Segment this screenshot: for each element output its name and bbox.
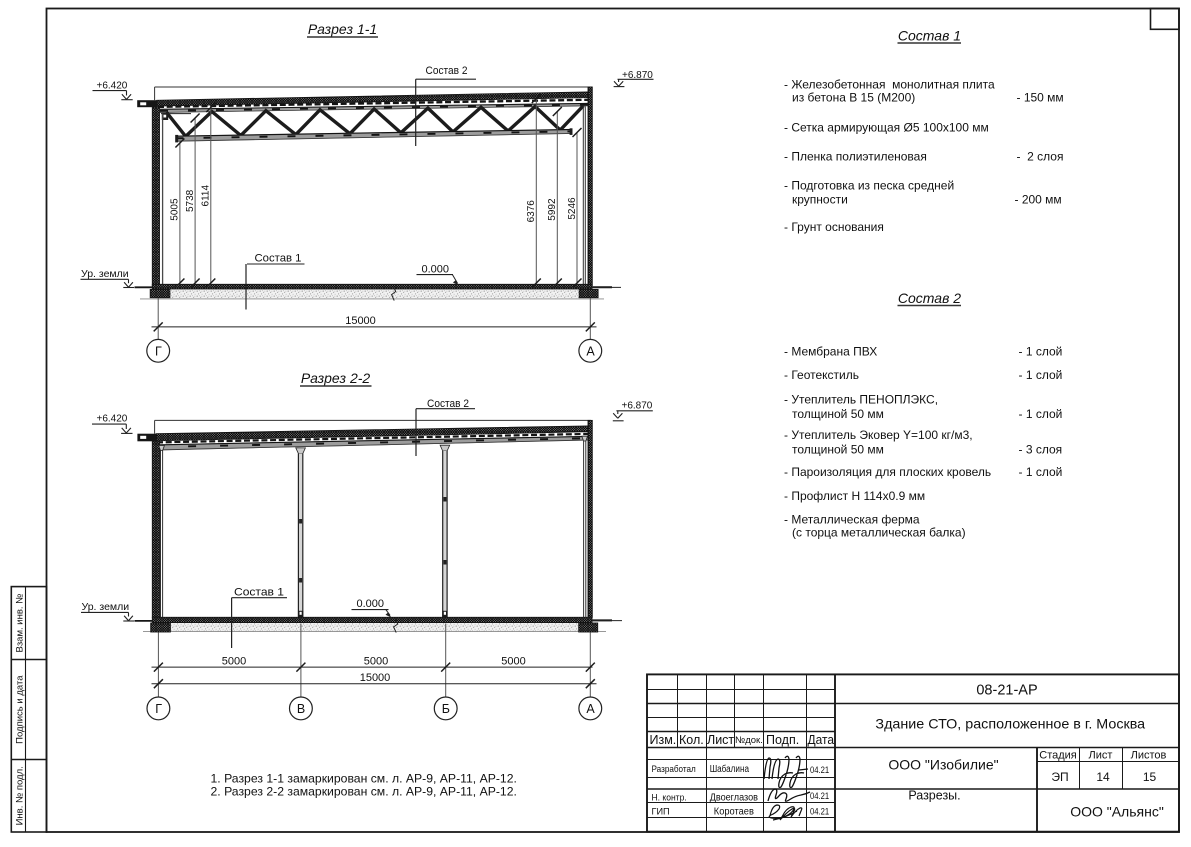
svg-text:Разрезы.: Разрезы. [908, 789, 960, 803]
svg-text:+6.420: +6.420 [97, 413, 128, 424]
svg-text:Дата: Дата [808, 733, 835, 747]
svg-text:+6.420: +6.420 [97, 80, 128, 91]
svg-text:6376: 6376 [526, 200, 537, 223]
svg-text:04.21: 04.21 [810, 791, 829, 801]
svg-text:15: 15 [1143, 770, 1157, 784]
svg-text:5000: 5000 [364, 656, 388, 668]
svg-text:6114: 6114 [200, 185, 211, 207]
svg-text:14: 14 [1096, 770, 1110, 784]
svg-text:- 1 слой: - 1 слой [1019, 407, 1063, 421]
svg-text:- Мембрана ПВХ: - Мембрана ПВХ [784, 345, 877, 359]
svg-text:Стадия: Стадия [1039, 750, 1077, 762]
svg-text:5738: 5738 [185, 189, 196, 212]
svg-text:- 1 слой: - 1 слой [1019, 345, 1063, 359]
svg-text:- 200 мм: - 200 мм [1015, 192, 1062, 206]
svg-text:04.21: 04.21 [810, 765, 829, 775]
svg-text:- Сетка армирующая Ø5 100х100: - Сетка армирующая Ø5 100х100 мм [784, 121, 989, 135]
svg-text:Изм.: Изм. [650, 733, 677, 747]
svg-text:В: В [297, 702, 305, 716]
svg-text:Г: Г [155, 702, 162, 716]
svg-text:Состав 2: Состав 2 [426, 65, 468, 77]
svg-text:- 150 мм: - 150 мм [1017, 90, 1064, 104]
svg-text:- Геотекстиль: - Геотекстиль [784, 368, 859, 382]
svg-text:Состав 2: Состав 2 [898, 290, 961, 306]
svg-text:толщиной 50 мм: толщиной 50 мм [792, 442, 884, 456]
svg-text:04.21: 04.21 [810, 807, 829, 817]
svg-text:Разрез 2-2: Разрез 2-2 [301, 370, 371, 386]
svg-text:Ур. земли: Ур. земли [81, 268, 129, 280]
svg-text:- 1 слой: - 1 слой [1019, 368, 1063, 382]
svg-text:Двоеглазов: Двоеглазов [710, 792, 758, 803]
svg-text:- Утеплитель Эковер Y=100 кг/м: - Утеплитель Эковер Y=100 кг/м3, [784, 428, 973, 442]
svg-text:Взам. инв. №: Взам. инв. № [15, 594, 26, 653]
svg-text:ООО "Изобилие": ООО "Изобилие" [888, 757, 998, 773]
svg-text:2. Разрез 2-2 замаркирован см.: 2. Разрез 2-2 замаркирован см. л. АР-9, … [211, 784, 517, 798]
svg-text:- 3 слоя: - 3 слоя [1019, 442, 1063, 456]
svg-text:Подпись и дата: Подпись и дата [15, 675, 26, 744]
svg-text:0.000: 0.000 [357, 598, 385, 610]
svg-text:5246: 5246 [567, 197, 578, 220]
svg-text:Коротаев: Коротаев [714, 807, 754, 818]
svg-text:из бетона В 15 (М200): из бетона В 15 (М200) [792, 90, 915, 104]
svg-text:08-21-АР: 08-21-АР [976, 683, 1037, 699]
svg-text:(с торца металлическая балка): (с торца металлическая балка) [792, 525, 966, 539]
svg-text:5000: 5000 [222, 656, 246, 668]
svg-text:Здание СТО, расположенное в г.: Здание СТО, расположенное в г. Москва [875, 716, 1145, 732]
svg-text:Г: Г [155, 344, 162, 358]
svg-text:Инв. № подл.: Инв. № подл. [15, 766, 26, 825]
svg-text:Б: Б [442, 702, 450, 716]
svg-text:ГИП: ГИП [652, 807, 670, 818]
svg-text:крупности: крупности [792, 192, 848, 206]
svg-text:Состав 1: Состав 1 [255, 253, 302, 265]
svg-text:- 2 слоя: - 2 слоя [1017, 150, 1064, 164]
svg-text:0.000: 0.000 [422, 264, 450, 276]
svg-text:Шабалина: Шабалина [710, 763, 750, 775]
svg-text:толщиной 50 мм: толщиной 50 мм [792, 407, 884, 421]
svg-text:+6.870: +6.870 [622, 401, 653, 412]
svg-text:15000: 15000 [360, 672, 391, 684]
svg-text:15000: 15000 [345, 315, 376, 327]
svg-text:5992: 5992 [547, 198, 558, 221]
svg-text:А: А [586, 344, 595, 358]
svg-text:5005: 5005 [170, 198, 181, 221]
svg-text:- Утеплитель ПЕНОПЛЭКС,: - Утеплитель ПЕНОПЛЭКС, [784, 393, 938, 407]
svg-text:Н. контр.: Н. контр. [652, 792, 687, 803]
svg-text:Подп.: Подп. [766, 733, 799, 747]
svg-text:Лист: Лист [707, 733, 734, 747]
svg-text:Лист: Лист [1089, 750, 1113, 762]
svg-text:- Грунт основания: - Грунт основания [784, 220, 884, 234]
svg-text:- Пароизоляция для плоских кро: - Пароизоляция для плоских кровель [784, 465, 991, 479]
svg-text:ООО "Альянс": ООО "Альянс" [1070, 804, 1164, 820]
svg-text:Состав 1: Состав 1 [234, 587, 284, 599]
svg-text:ЭП: ЭП [1051, 770, 1068, 784]
svg-text:Разрез 1-1: Разрез 1-1 [308, 21, 377, 37]
svg-text:Ур. земли: Ур. земли [82, 601, 130, 613]
svg-text:- Профлист Н 114х0.9 мм: - Профлист Н 114х0.9 мм [784, 489, 925, 503]
svg-text:Состав 1: Состав 1 [898, 28, 961, 44]
svg-text:- Пленка полиэтиленовая: - Пленка полиэтиленовая [784, 150, 927, 164]
svg-text:Разработал: Разработал [652, 764, 696, 775]
svg-text:- 1 слой: - 1 слой [1019, 465, 1063, 479]
svg-text:Кол.: Кол. [679, 733, 704, 747]
svg-text:- Подготовка из песка средней: - Подготовка из песка средней [784, 179, 954, 193]
svg-text:5000: 5000 [501, 656, 525, 668]
svg-text:№док.: №док. [735, 735, 763, 746]
svg-text:Листов: Листов [1131, 750, 1167, 762]
svg-text:А: А [586, 702, 595, 716]
